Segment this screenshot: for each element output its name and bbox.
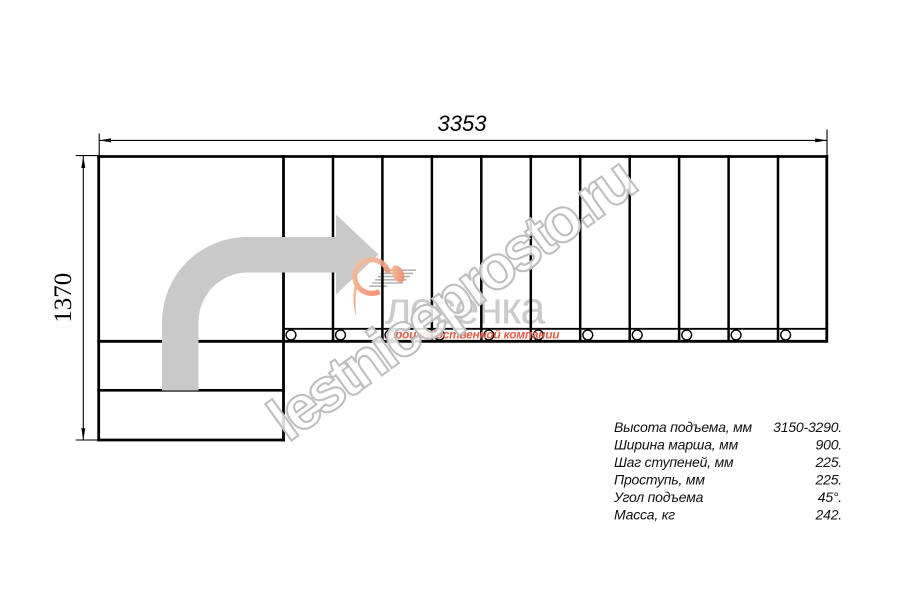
svg-text:225.: 225. [815,472,842,488]
svg-text:900.: 900. [816,437,842,453]
svg-text:242.: 242. [815,507,842,523]
svg-text:3353: 3353 [438,111,488,136]
svg-text:Высота подъема, мм: Высота подъема, мм [614,419,753,435]
svg-text:Проступь, мм: Проступь, мм [614,472,705,488]
svg-text:1370: 1370 [50,273,77,323]
svg-text:225.: 225. [815,454,842,470]
svg-text:Шаг ступеней, мм: Шаг ступеней, мм [614,454,734,470]
svg-text:Угол подъема: Угол подъема [613,489,704,505]
svg-text:Ширина марша, мм: Ширина марша, мм [614,437,739,453]
svg-text:Масса, кг: Масса, кг [614,507,675,523]
svg-text:45°.: 45°. [818,489,842,505]
svg-text:3150-3290.: 3150-3290. [773,419,842,435]
